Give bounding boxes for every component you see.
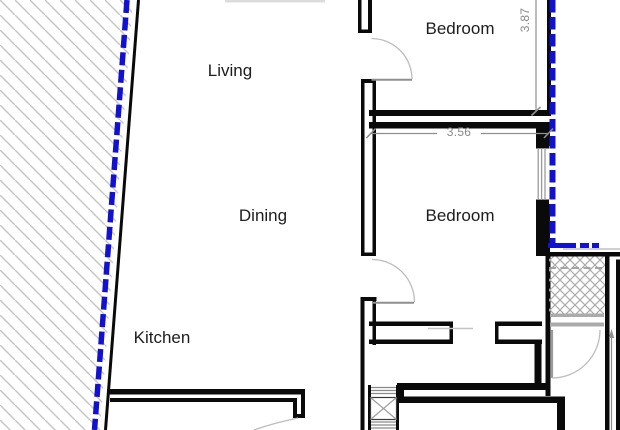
crosshatch-panel (549, 257, 605, 327)
shaft-symbol (368, 385, 399, 430)
walls (107, 0, 620, 430)
window (538, 148, 545, 200)
dimension-text-3-87: 3.87 (519, 0, 533, 40)
room-label-bedroom-mid: Bedroom (410, 207, 510, 224)
faint-top-wall-trace (225, 0, 325, 3)
bedroom-top-door-arc (372, 39, 413, 80)
room-label-bedroom-top: Bedroom (410, 20, 510, 37)
dimension-text-3-56: 3.56 (439, 126, 479, 139)
bedroom-top-bottom-wall (369, 110, 551, 116)
floor-plan-canvas: Living Dining Kitchen Bedroom Bedroom 3.… (0, 0, 620, 430)
blue-dashed-wall-line (548, 0, 620, 249)
bedroom-mid-door-arc (372, 260, 415, 303)
room-label-dining: Dining (223, 207, 303, 224)
room-label-living: Living (190, 62, 270, 79)
floor-plan-drawing (0, 0, 620, 430)
room-label-kitchen: Kitchen (122, 329, 202, 346)
lobby-door-arc (552, 330, 600, 378)
kitchen-door-arc (254, 418, 298, 430)
